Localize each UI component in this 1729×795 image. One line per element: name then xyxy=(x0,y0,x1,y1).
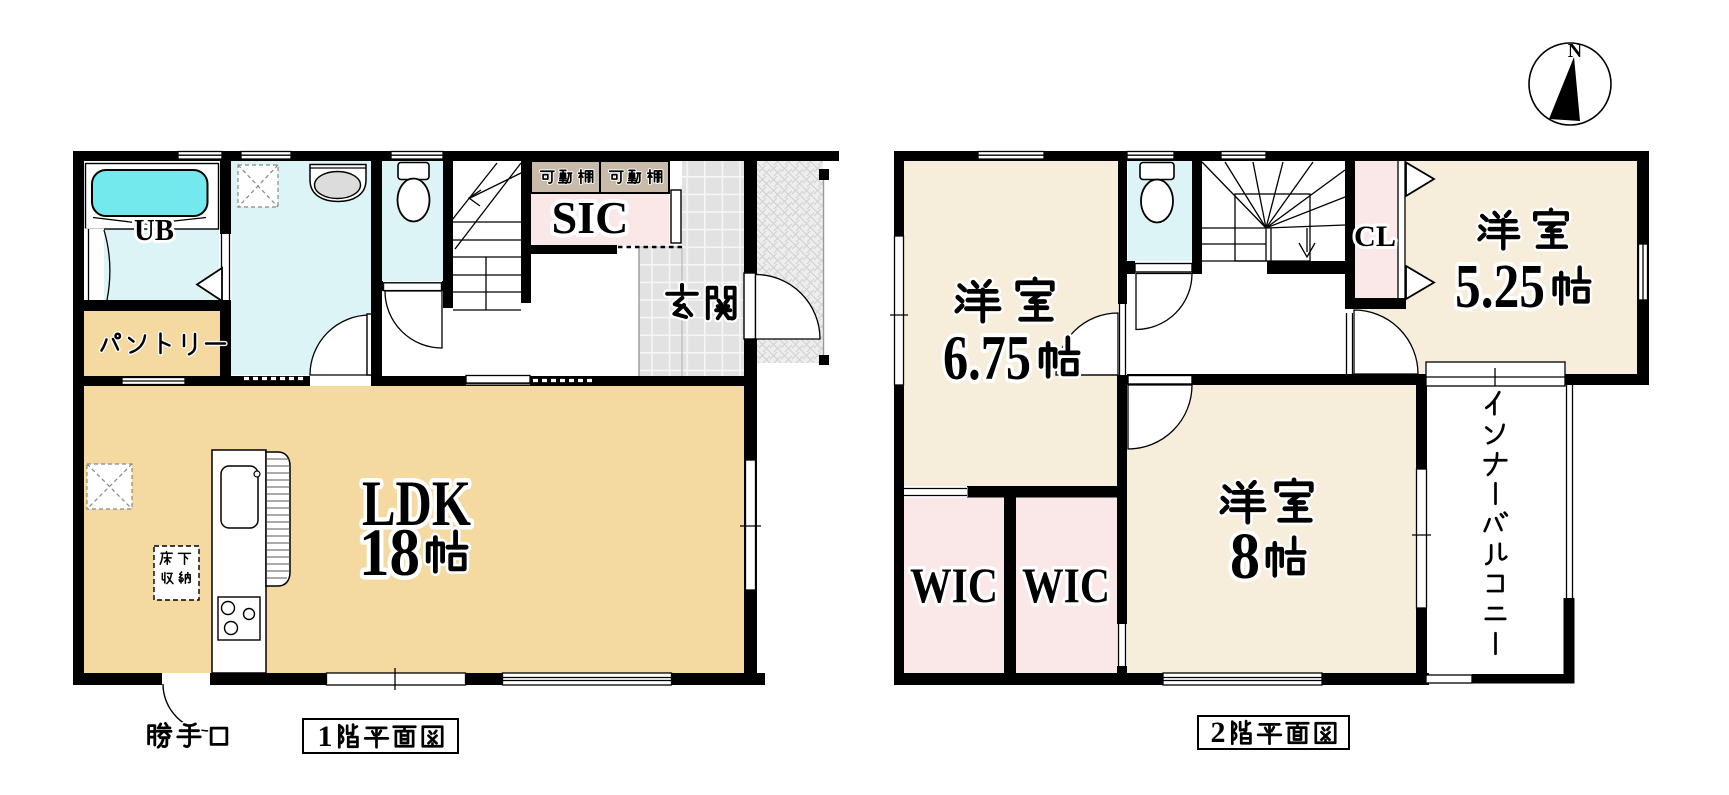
svg-text:18: 18 xyxy=(359,514,420,590)
svg-text:5.25: 5.25 xyxy=(1455,253,1545,321)
svg-text:SIC: SIC xyxy=(552,192,629,243)
svg-text:6.75: 6.75 xyxy=(943,322,1031,393)
svg-text:WIC: WIC xyxy=(910,557,998,613)
svg-text:8: 8 xyxy=(1230,520,1260,593)
svg-text:2: 2 xyxy=(1211,716,1226,749)
svg-text:1: 1 xyxy=(318,720,333,753)
svg-text:UB: UB xyxy=(134,212,174,247)
svg-text:N: N xyxy=(1568,40,1583,62)
svg-text:WIC: WIC xyxy=(1022,557,1110,613)
svg-text:CL: CL xyxy=(1354,220,1396,253)
